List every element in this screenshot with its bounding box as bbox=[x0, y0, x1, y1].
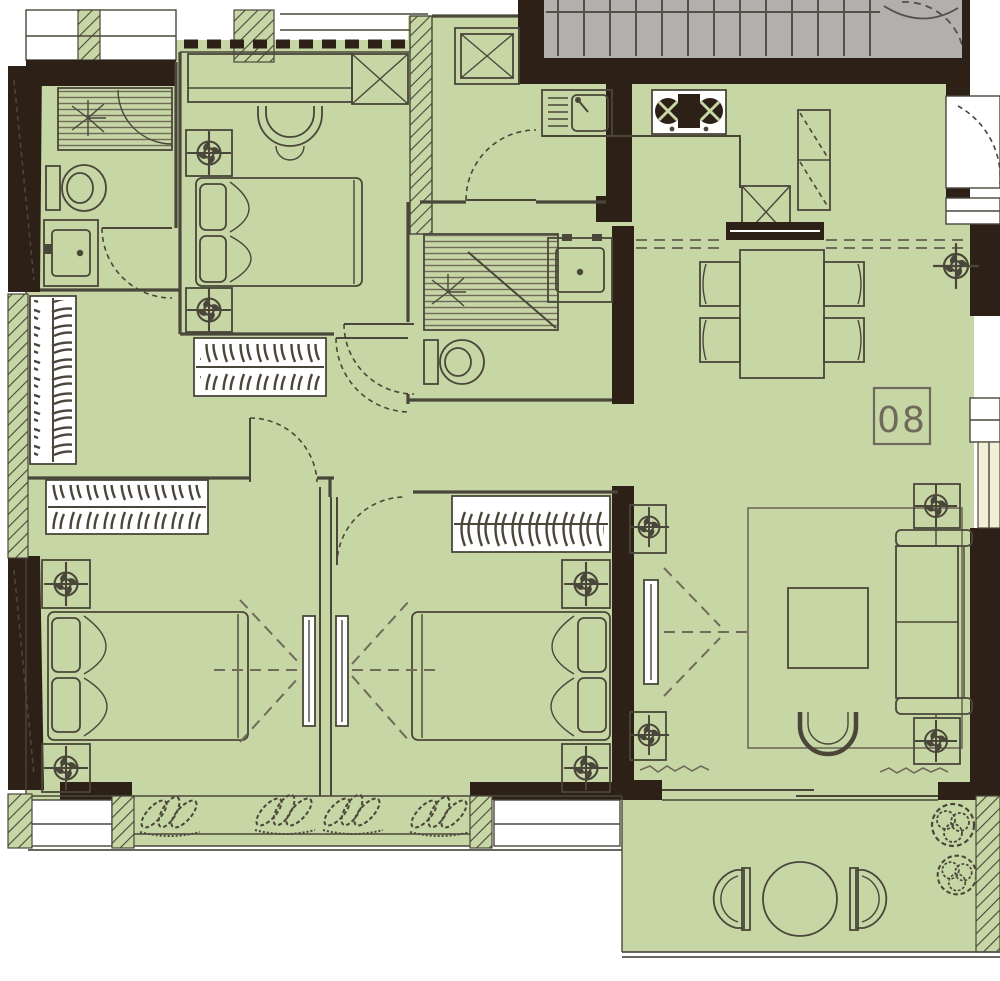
cooktop bbox=[652, 90, 726, 134]
masonry-pier bbox=[78, 10, 100, 60]
floor-plan-drawing: 08 bbox=[0, 0, 1000, 981]
stairwell bbox=[518, 0, 970, 58]
masonry-pier bbox=[8, 794, 32, 848]
balcony-side-wall bbox=[976, 796, 1000, 952]
masonry-pier bbox=[112, 796, 134, 848]
window-wall bbox=[8, 294, 28, 558]
wardrobe bbox=[194, 338, 326, 396]
window bbox=[494, 800, 620, 846]
service-door-recess bbox=[946, 96, 1000, 188]
stair-landing bbox=[518, 0, 970, 58]
wardrobe bbox=[452, 496, 610, 552]
tv-panel bbox=[303, 616, 315, 726]
tv-panel bbox=[336, 616, 348, 726]
shower bbox=[424, 234, 558, 330]
floor-plan-page: 08 bbox=[0, 0, 1000, 981]
linen-closet bbox=[46, 480, 208, 534]
coat-closet bbox=[30, 296, 76, 464]
unit-number: 08 bbox=[877, 400, 927, 441]
masonry-pier bbox=[470, 796, 492, 848]
window bbox=[30, 800, 112, 846]
tv-cabinet bbox=[644, 580, 658, 684]
